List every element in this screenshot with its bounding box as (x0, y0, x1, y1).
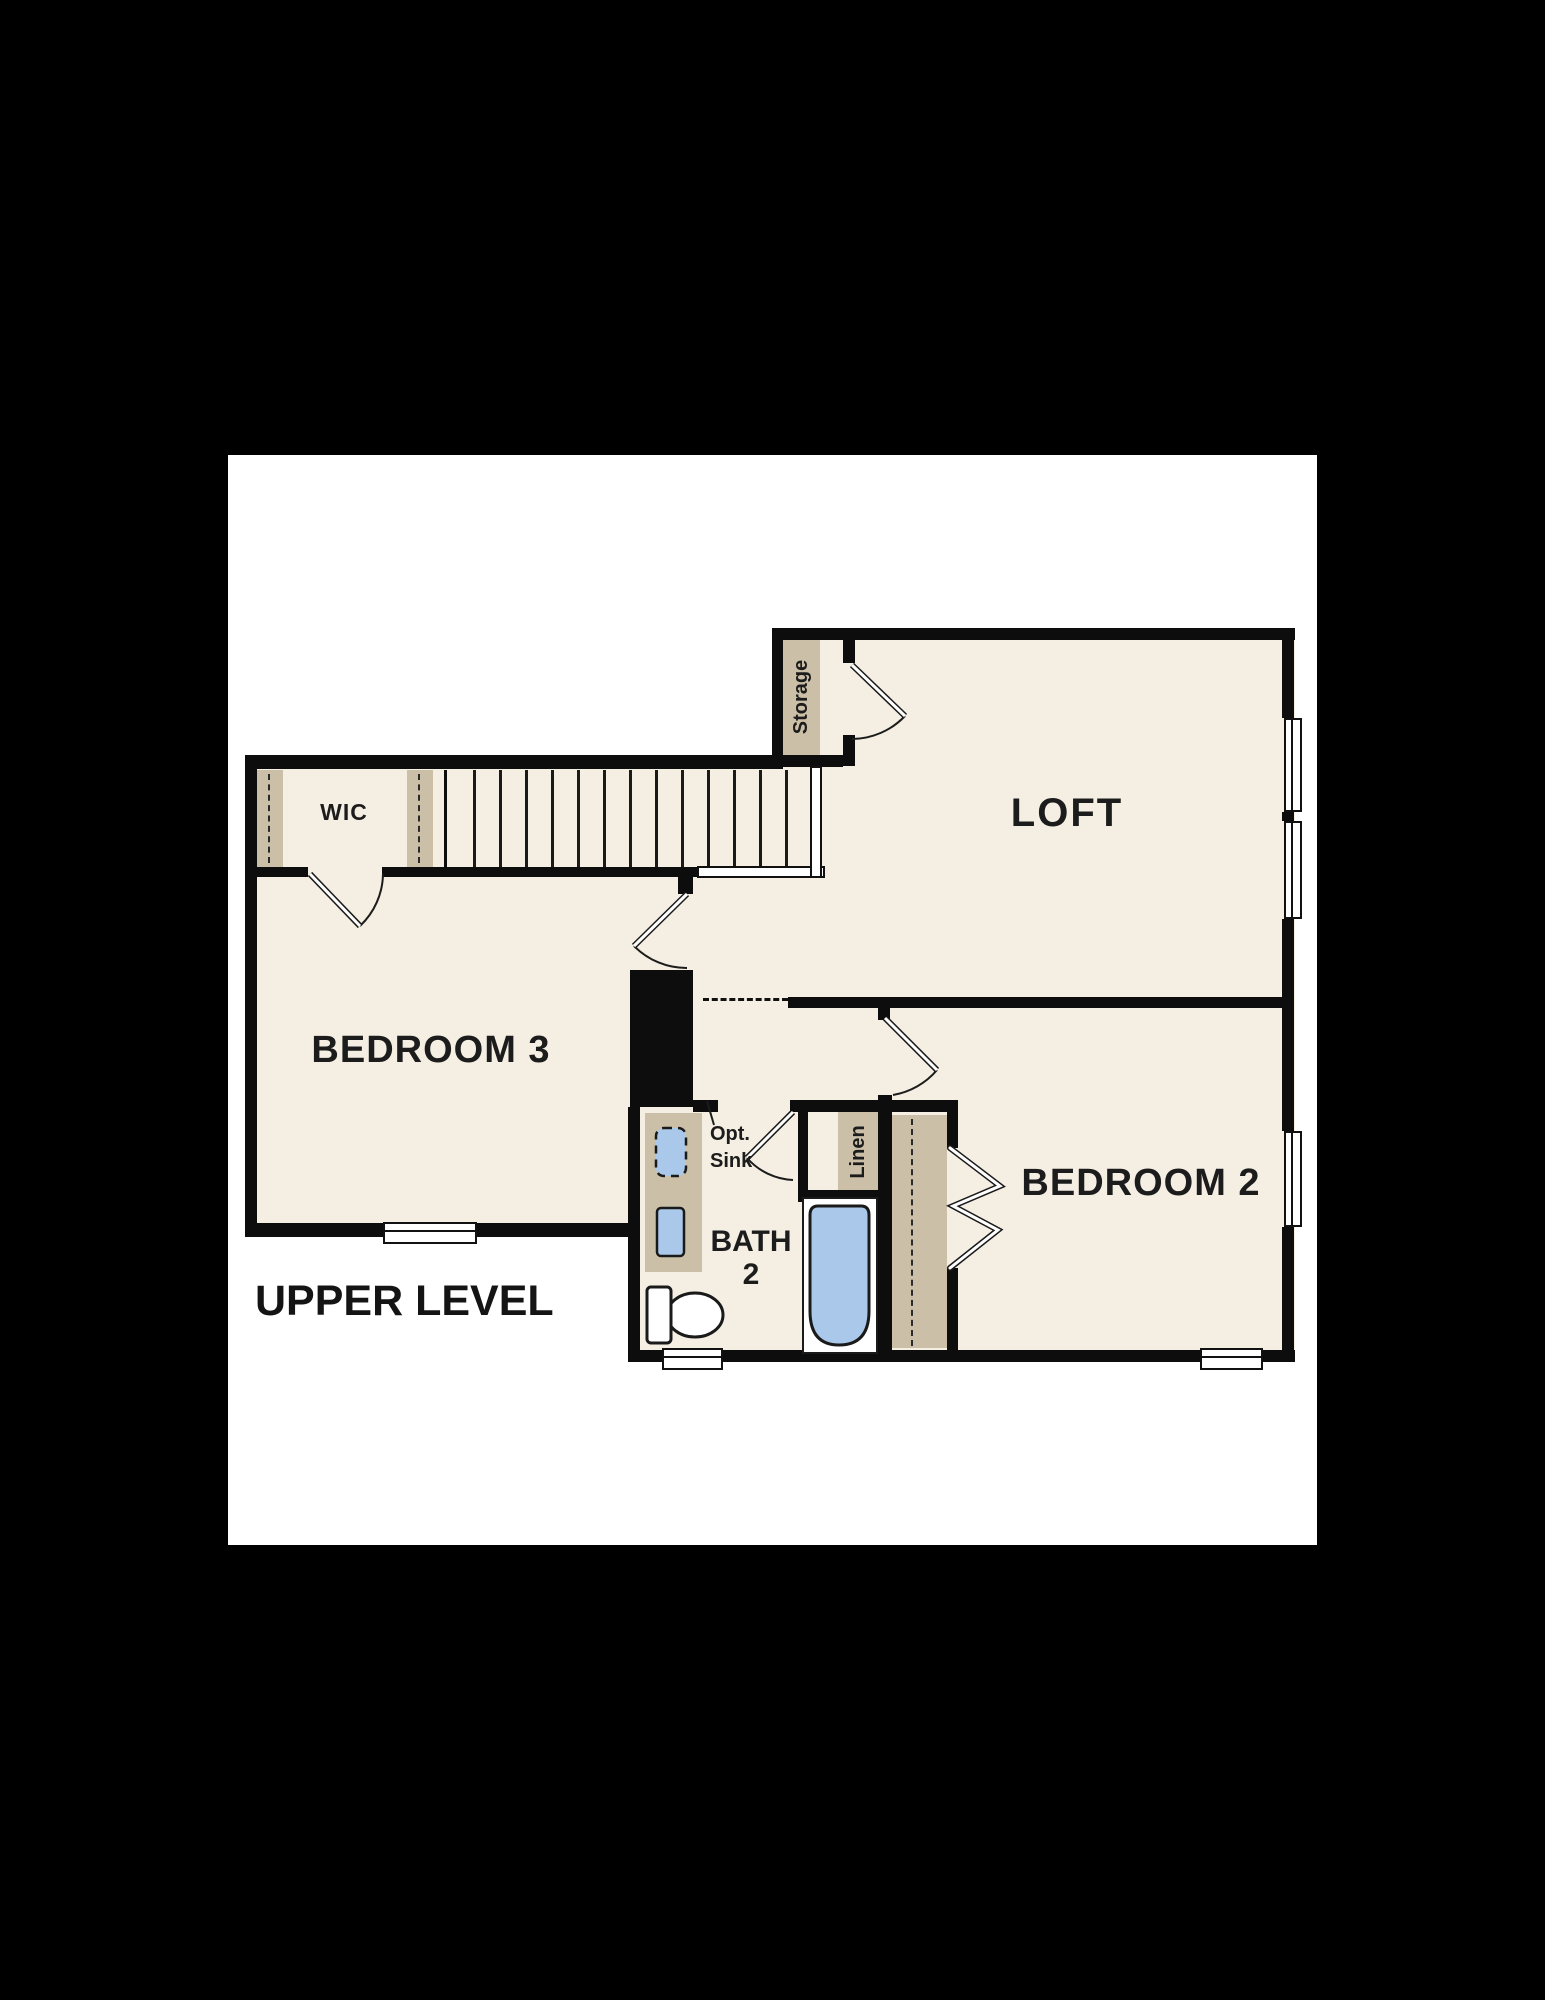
storage-label: Storage (791, 637, 811, 757)
loft-label: LOFT (942, 791, 1192, 836)
bedroom2-label: BEDROOM 2 (966, 1162, 1316, 1205)
floorplan-sheet: LOFT BEDROOM 3 BEDROOM 2 BATH 2 WIC Stor… (228, 455, 1317, 1545)
bedroom3-label: BEDROOM 3 (256, 1029, 606, 1072)
bath2-label-line1: BATH (671, 1225, 831, 1258)
bath2-door-icon (747, 1112, 793, 1180)
storage-door-icon (852, 665, 905, 739)
bath2-label-line2: 2 (671, 1258, 831, 1291)
wic-door-icon (310, 874, 383, 926)
opt-sink-label: Opt. Sink (710, 1121, 752, 1175)
opt-sink-label-line1: Opt. (710, 1121, 752, 1148)
optional-sink-icon (656, 1128, 686, 1176)
linen-label: Linen (848, 1102, 868, 1202)
opt-sink-label-line2: Sink (710, 1148, 752, 1175)
plan-symbols-layer (228, 455, 1317, 1545)
toilet-icon (647, 1287, 723, 1343)
wic-label: WIC (294, 799, 394, 826)
bath2-label: BATH 2 (671, 1225, 831, 1291)
page-background: LOFT BEDROOM 3 BEDROOM 2 BATH 2 WIC Stor… (0, 0, 1545, 2000)
bedroom2-door-icon (885, 1018, 937, 1095)
floor-level-title: UPPER LEVEL (255, 1277, 554, 1326)
bedroom3-door-icon (634, 894, 687, 968)
